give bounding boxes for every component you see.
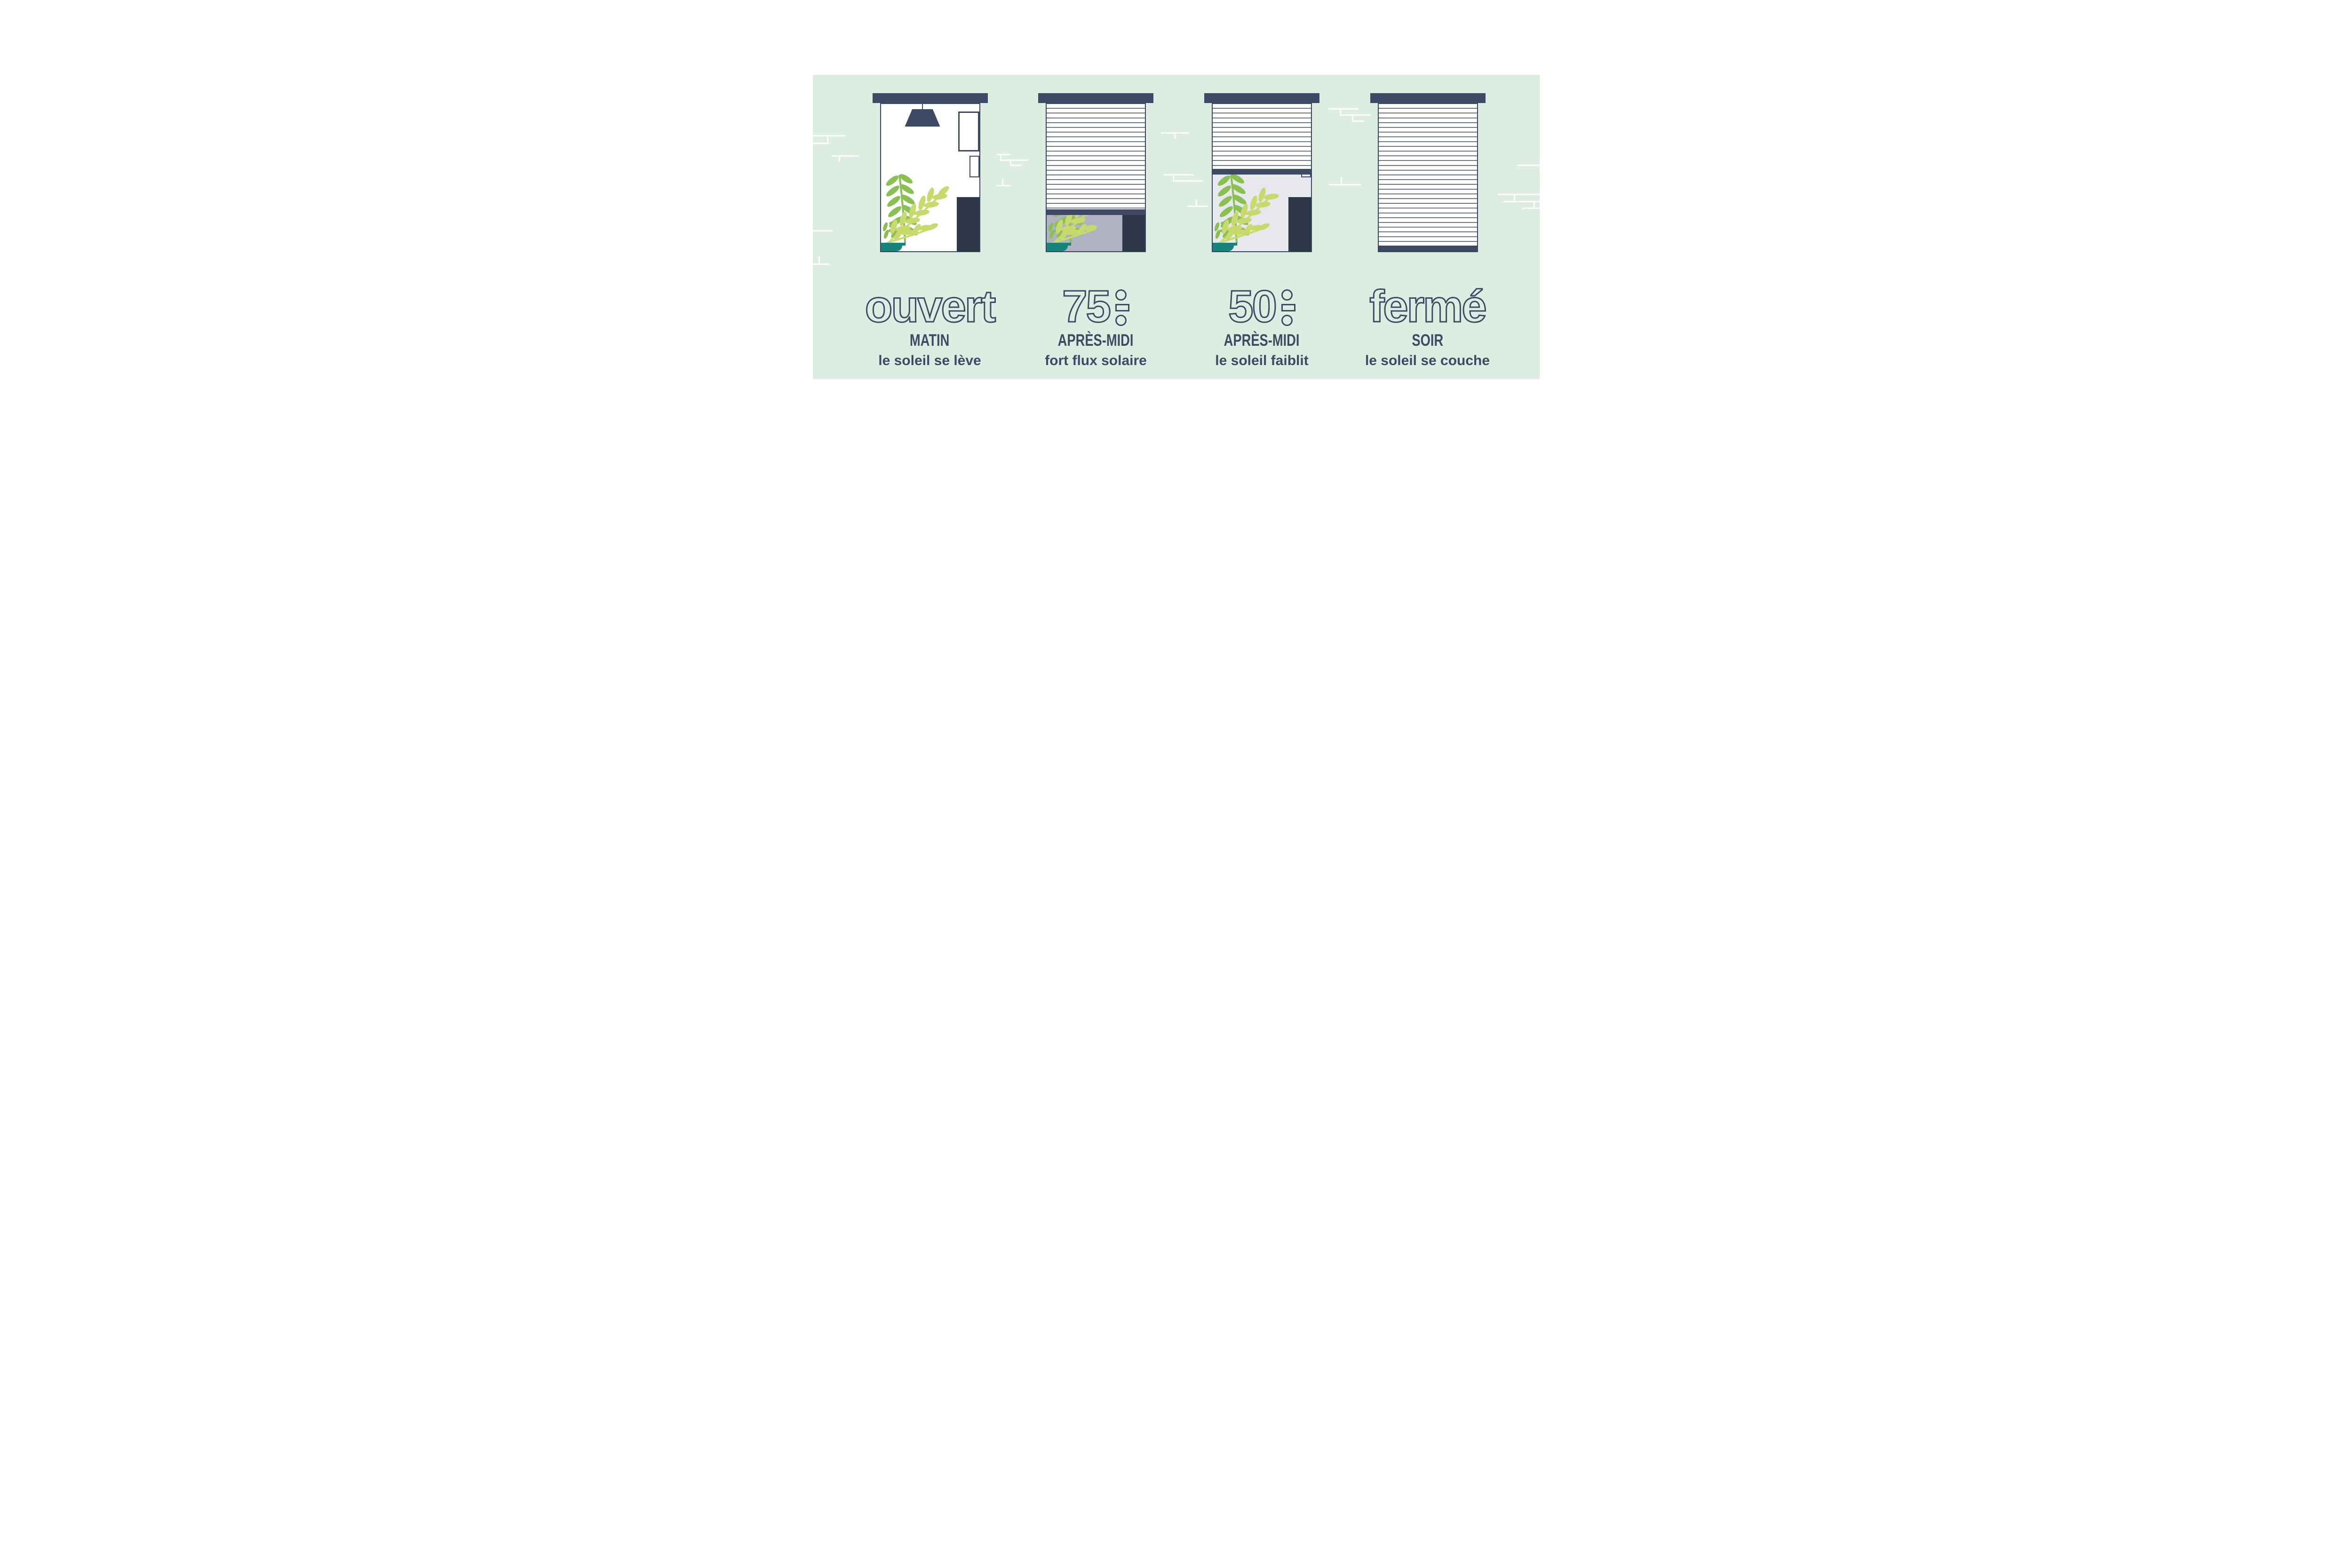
brick-line xyxy=(813,143,829,144)
shutter-bottom-bar xyxy=(1379,246,1477,251)
brick-line xyxy=(1534,201,1535,207)
shutter-box xyxy=(1038,93,1153,103)
brick-line xyxy=(1352,114,1353,121)
window-frame xyxy=(1046,103,1146,252)
shutter-window-closed xyxy=(1370,93,1486,253)
brick-line xyxy=(827,135,828,143)
brick-line xyxy=(1514,194,1515,201)
brick-line xyxy=(1517,165,1540,166)
brick-line xyxy=(1522,207,1540,209)
brick-line xyxy=(997,154,1010,155)
brick-line xyxy=(1341,177,1342,184)
picture-frame-large xyxy=(958,111,979,151)
shutter-bottom-bar xyxy=(1213,169,1311,175)
label-group-closed: fermé SOIR le soleil se couche xyxy=(1345,282,1510,368)
shutter-box xyxy=(1204,93,1319,103)
big-label-closed: fermé xyxy=(1369,284,1485,329)
plant-pot xyxy=(1213,246,1234,251)
furniture-block xyxy=(957,197,979,251)
shutter-box xyxy=(1370,93,1486,103)
plant-icon xyxy=(1213,168,1282,244)
description-label: le soleil se couche xyxy=(1345,353,1510,368)
big-label-50-digits: 50 xyxy=(1228,284,1276,329)
brick-line xyxy=(1340,108,1341,115)
infographic-stage: ouvert MATIN le soleil se lève 75 APRÈS-… xyxy=(813,0,1540,454)
brick-line xyxy=(1498,194,1540,195)
brick-line xyxy=(813,263,829,265)
plant-pot xyxy=(881,246,902,251)
brick-line xyxy=(1196,199,1197,206)
brick-line xyxy=(1328,108,1359,110)
label-group-75: 75 APRÈS-MIDI fort flux solaire xyxy=(1013,282,1179,368)
brick-line xyxy=(813,230,833,231)
brick-line xyxy=(1174,132,1176,139)
shutter-curtain xyxy=(1379,104,1477,251)
picture-frame-small xyxy=(969,156,979,177)
brick-line xyxy=(1000,159,1028,161)
brick-line xyxy=(1340,114,1371,116)
big-label-75-digits: 75 xyxy=(1062,284,1110,329)
brick-line xyxy=(818,256,820,264)
brick-line xyxy=(1329,184,1361,185)
shutter-window-open xyxy=(873,93,988,253)
big-label-open: ouvert xyxy=(865,284,994,329)
shutter-window-50 xyxy=(1204,93,1319,253)
shutter-window-75 xyxy=(1038,93,1153,253)
brick-line xyxy=(832,155,859,157)
shutter-curtain xyxy=(1047,104,1145,215)
plant-icon xyxy=(881,168,950,244)
brick-line xyxy=(1163,174,1194,175)
description-label: fort flux solaire xyxy=(1013,353,1179,368)
brick-line xyxy=(1173,174,1174,181)
percent-icon xyxy=(1281,289,1295,326)
plant-pot xyxy=(1047,246,1068,251)
shutter-curtain xyxy=(1213,104,1311,175)
window-frame xyxy=(1212,103,1312,252)
window-frame xyxy=(1378,103,1478,252)
shutter-bottom-bar xyxy=(1047,209,1145,215)
shutter-box xyxy=(873,93,988,103)
time-label: APRÈS-MIDI xyxy=(1179,332,1345,349)
brick-line xyxy=(1010,165,1022,166)
time-label: SOIR xyxy=(1345,332,1510,349)
label-group-50: 50 APRÈS-MIDI le soleil faiblit xyxy=(1179,282,1345,368)
time-label: APRÈS-MIDI xyxy=(1013,332,1179,349)
brick-line xyxy=(1173,180,1203,182)
label-group-open: ouvert MATIN le soleil se lève xyxy=(847,282,1013,368)
brick-line xyxy=(813,135,846,136)
time-label: MATIN xyxy=(847,332,1013,349)
percent-icon xyxy=(1115,289,1129,326)
window-frame xyxy=(880,103,980,252)
description-label: le soleil se lève xyxy=(847,353,1013,368)
lamp-cord xyxy=(922,104,923,109)
brick-line xyxy=(997,185,1011,186)
furniture-block xyxy=(1288,197,1311,251)
brick-line xyxy=(1352,120,1364,122)
description-label: le soleil faiblit xyxy=(1179,353,1345,368)
brick-line xyxy=(839,155,840,161)
